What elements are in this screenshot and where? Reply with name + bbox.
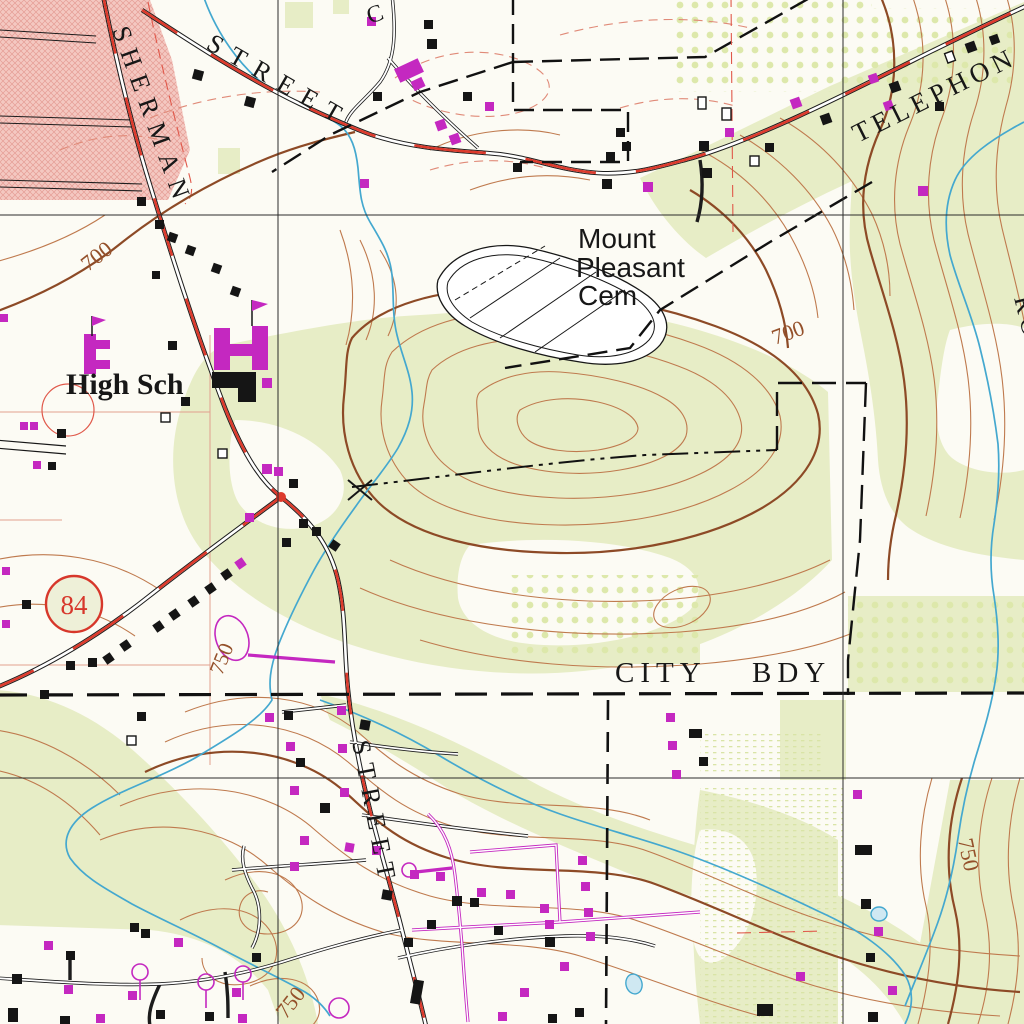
building <box>252 326 268 370</box>
building <box>262 464 272 474</box>
building <box>373 92 382 101</box>
building <box>360 179 369 188</box>
building <box>381 889 393 901</box>
building <box>2 567 10 575</box>
building <box>212 372 256 388</box>
building <box>520 988 529 997</box>
building <box>506 890 515 899</box>
building <box>427 39 437 49</box>
building <box>245 513 254 522</box>
building <box>725 128 734 137</box>
building <box>252 953 261 962</box>
building <box>485 102 494 111</box>
building <box>230 344 252 356</box>
building <box>127 736 136 745</box>
building <box>672 770 681 779</box>
building <box>410 870 419 879</box>
topo-map-page: 84 SHERMAN STREET C TELEPHON STREET ROAD… <box>0 0 1024 1024</box>
building <box>513 163 522 172</box>
building <box>699 757 708 766</box>
route-84-label: 84 <box>61 590 89 620</box>
building <box>96 340 110 349</box>
building <box>296 758 305 767</box>
building <box>602 179 612 189</box>
building <box>581 882 590 891</box>
building <box>20 422 28 430</box>
building <box>668 741 677 750</box>
building <box>575 1008 584 1017</box>
building <box>2 620 10 628</box>
building <box>320 803 330 813</box>
building <box>40 690 49 699</box>
building <box>238 1014 247 1023</box>
building <box>855 845 872 855</box>
building <box>290 862 299 871</box>
building <box>88 658 97 667</box>
school-label: High Sch <box>66 368 184 401</box>
building <box>218 449 227 458</box>
building <box>463 92 472 101</box>
building <box>290 786 299 795</box>
building <box>584 908 593 917</box>
building <box>155 220 164 229</box>
building <box>96 1014 105 1023</box>
building <box>262 378 272 388</box>
building <box>265 713 274 722</box>
building <box>868 1012 878 1022</box>
building <box>427 920 436 929</box>
building <box>137 197 146 206</box>
building <box>918 186 928 196</box>
building <box>289 479 298 488</box>
building <box>750 156 759 166</box>
building <box>232 988 241 997</box>
building <box>540 904 549 913</box>
building <box>286 742 295 751</box>
building <box>874 927 883 936</box>
building <box>22 600 31 609</box>
building <box>168 341 177 350</box>
building <box>312 527 321 536</box>
building <box>560 962 569 971</box>
building <box>578 856 587 865</box>
building <box>866 953 875 962</box>
building <box>470 898 479 907</box>
building <box>586 932 595 941</box>
building <box>338 744 347 753</box>
building <box>344 842 354 852</box>
building <box>666 713 675 722</box>
building <box>282 538 291 547</box>
building <box>66 951 75 960</box>
building <box>214 328 230 370</box>
building <box>548 1014 557 1023</box>
building <box>205 1012 214 1021</box>
building <box>622 142 631 151</box>
building <box>494 926 503 935</box>
building <box>300 836 309 845</box>
building <box>128 991 137 1000</box>
building <box>765 143 774 152</box>
building <box>698 97 706 109</box>
building <box>702 168 712 178</box>
building <box>498 1012 507 1021</box>
cemetery-label-line1: Mount <box>578 223 656 254</box>
building <box>12 974 22 984</box>
city-bdy-label-2: BDY <box>752 657 831 689</box>
building <box>141 929 150 938</box>
building <box>60 1016 70 1024</box>
building <box>340 788 349 797</box>
building <box>545 920 554 929</box>
building <box>57 429 66 438</box>
building <box>284 711 293 720</box>
topo-map: 84 SHERMAN STREET C TELEPHON STREET ROAD… <box>0 0 1024 1024</box>
building <box>853 790 862 799</box>
building <box>757 1004 773 1016</box>
building <box>174 938 183 947</box>
building <box>699 141 709 151</box>
building <box>0 314 8 322</box>
city-bdy-label-1: CITY <box>615 657 707 689</box>
building <box>156 1010 165 1019</box>
building <box>66 661 75 670</box>
building <box>44 941 53 950</box>
building <box>888 986 897 995</box>
building <box>337 706 346 715</box>
building <box>359 719 371 731</box>
building <box>861 899 871 909</box>
building <box>796 972 805 981</box>
building <box>616 128 625 137</box>
building <box>643 182 653 192</box>
building <box>477 888 486 897</box>
building <box>424 20 433 29</box>
cemetery-label-line2: Pleasant <box>576 252 685 283</box>
building <box>452 896 462 906</box>
building <box>161 413 170 422</box>
building <box>404 938 413 947</box>
building <box>606 152 615 161</box>
building <box>436 872 445 881</box>
building <box>137 712 146 721</box>
cemetery-label-line3: Cem <box>578 280 637 311</box>
building <box>274 467 283 476</box>
building <box>130 923 139 932</box>
building <box>299 519 308 528</box>
building <box>545 937 555 947</box>
building <box>238 388 256 402</box>
building <box>64 985 73 994</box>
building <box>8 1008 18 1022</box>
building <box>30 422 38 430</box>
building <box>152 271 160 279</box>
building <box>689 729 702 738</box>
route-84-shield: 84 <box>46 576 102 632</box>
building <box>33 461 41 469</box>
building <box>48 462 56 470</box>
building <box>722 108 731 120</box>
